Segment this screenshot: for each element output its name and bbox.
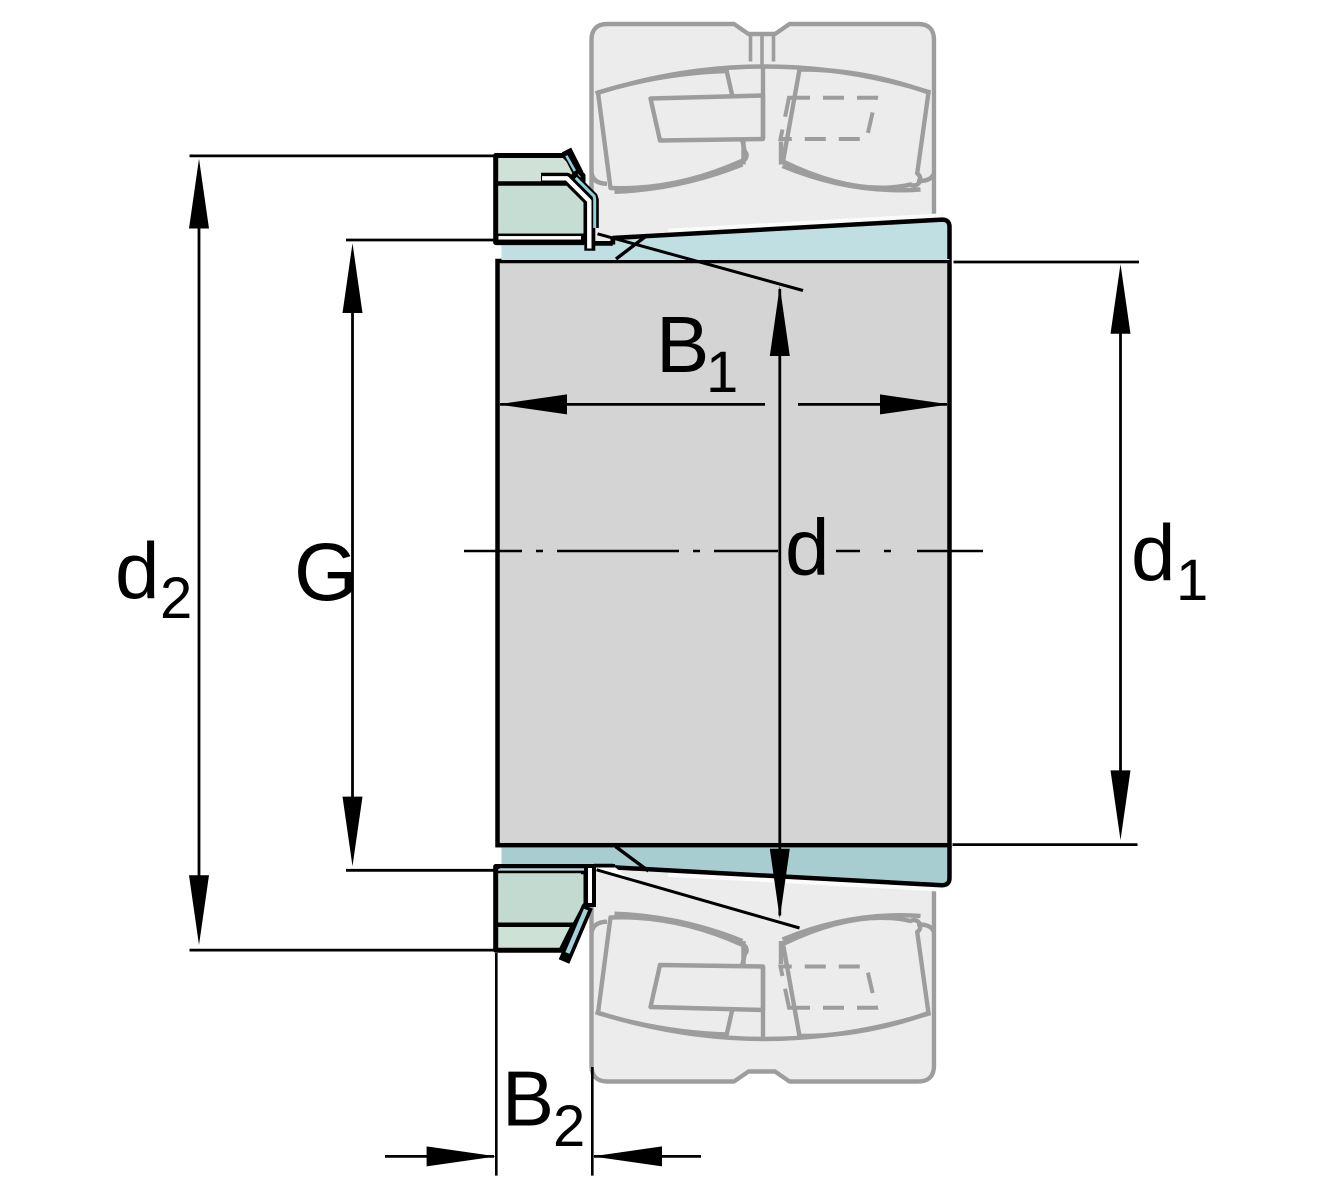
svg-text:B: B [502, 1055, 554, 1143]
svg-text:1: 1 [1176, 548, 1208, 613]
svg-text:2: 2 [160, 566, 192, 631]
svg-text:d: d [115, 527, 160, 616]
svg-text:B: B [656, 300, 709, 389]
svg-text:d: d [1131, 509, 1176, 598]
svg-text:d: d [785, 503, 830, 592]
svg-text:G: G [294, 527, 358, 618]
svg-text:1: 1 [706, 340, 738, 405]
svg-text:2: 2 [553, 1094, 585, 1159]
